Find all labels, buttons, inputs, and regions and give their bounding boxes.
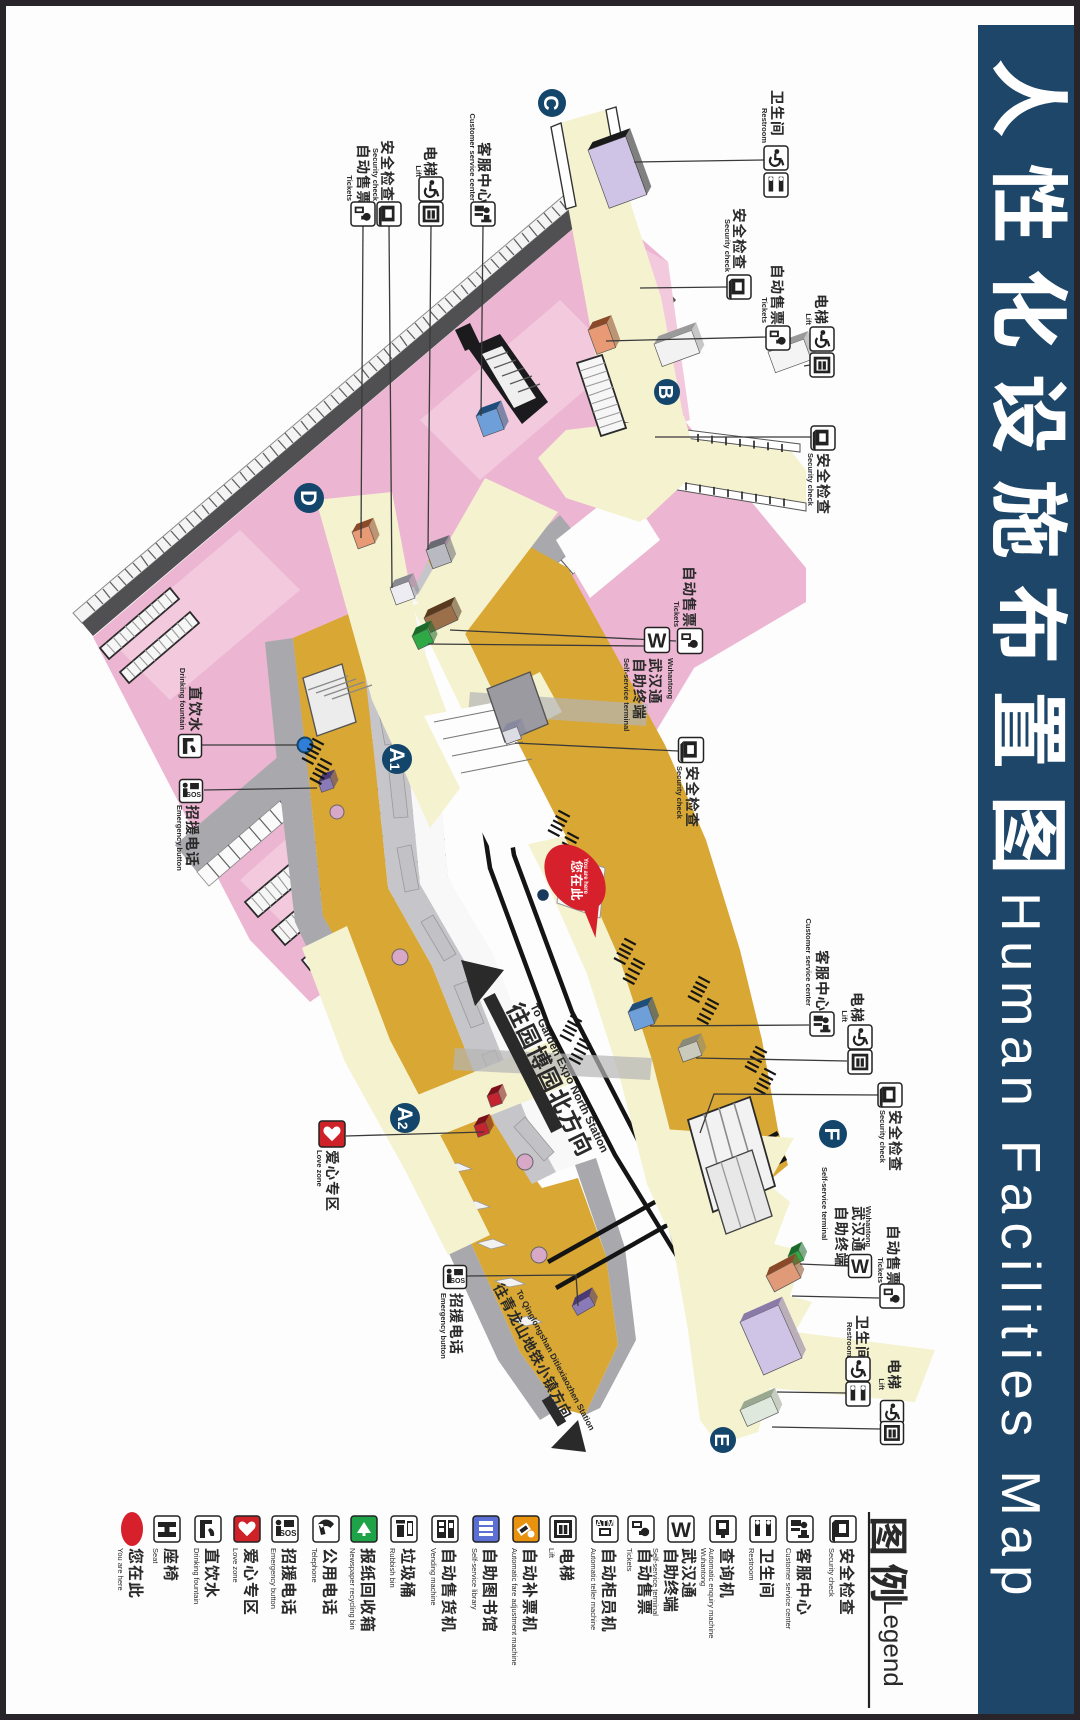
svg-text:Customer service center: Customer service center: [784, 1548, 793, 1630]
svg-text:Restroom: Restroom: [845, 1322, 854, 1357]
svg-text:Newspaper recycling bin: Newspaper recycling bin: [348, 1548, 357, 1630]
svg-text:Security check: Security check: [371, 148, 380, 202]
svg-text:Lift: Lift: [840, 1010, 849, 1022]
svg-text:Customer service center: Customer service center: [804, 918, 813, 1006]
svg-text:Customer service center: Customer service center: [468, 113, 477, 201]
svg-text:Self-service terminal: Self-service terminal: [651, 1548, 660, 1616]
svg-text:SOS: SOS: [186, 792, 201, 799]
svg-text:Vending machine: Vending machine: [429, 1548, 438, 1606]
svg-text:You are here: You are here: [582, 858, 588, 895]
svg-text:Tickets: Tickets: [345, 175, 354, 201]
svg-text:Tickets: Tickets: [625, 1548, 634, 1572]
svg-text:Restroom: Restroom: [747, 1548, 756, 1581]
svg-text:Drinking fountain: Drinking fountain: [192, 1548, 201, 1604]
svg-text:Restroom: Restroom: [760, 108, 769, 143]
svg-text:Self-service library: Self-service library: [470, 1548, 479, 1610]
svg-text:Wuhantong: Wuhantong: [666, 658, 675, 700]
svg-text:Self-service terminal: Self-service terminal: [622, 658, 631, 731]
svg-text:W: W: [648, 631, 667, 653]
svg-text:Tickets: Tickets: [760, 297, 769, 323]
svg-text:Lift: Lift: [547, 1548, 556, 1559]
svg-text:Telephone: Telephone: [310, 1548, 319, 1583]
svg-text:Human Facilities Map: Human Facilities Map: [990, 892, 1052, 1605]
svg-text:Emergency button: Emergency button: [439, 1293, 448, 1359]
svg-text:Wuhantong: Wuhantong: [699, 1548, 708, 1586]
svg-text:Legend: Legend: [878, 1600, 908, 1687]
svg-text:B: B: [654, 385, 676, 399]
svg-text:Security check: Security check: [827, 1548, 836, 1597]
svg-text:Lift: Lift: [877, 1378, 886, 1390]
svg-text:E: E: [710, 1433, 732, 1446]
svg-text:D: D: [296, 490, 321, 506]
svg-text:Love zone: Love zone: [315, 1150, 324, 1187]
svg-text:F: F: [820, 1128, 843, 1141]
svg-text:Automatic teller machine: Automatic teller machine: [589, 1548, 598, 1630]
svg-text:Lift: Lift: [414, 165, 423, 177]
svg-text:Wuhantong: Wuhantong: [864, 1206, 873, 1248]
svg-text:Security check: Security check: [806, 453, 815, 507]
svg-text:Emergency button: Emergency button: [175, 805, 184, 871]
svg-text:SOS: SOS: [280, 1529, 298, 1538]
svg-text:Drinking fountain: Drinking fountain: [178, 668, 187, 730]
svg-text:Security check: Security check: [675, 766, 684, 820]
svg-text:Automatic fare adjustment mach: Automatic fare adjustment machine: [510, 1548, 519, 1666]
svg-text:Security check: Security check: [723, 219, 732, 273]
svg-text:W: W: [671, 1519, 691, 1542]
svg-text:Love zone: Love zone: [231, 1548, 240, 1583]
svg-text:Self-service terminal: Self-service terminal: [820, 1167, 829, 1240]
svg-text:SOS: SOS: [450, 1278, 465, 1285]
svg-text:You are here: You are here: [116, 1548, 125, 1591]
svg-text:Security check: Security check: [878, 1110, 887, 1164]
svg-text:ATM: ATM: [596, 1518, 615, 1528]
svg-text:W: W: [851, 1257, 869, 1278]
svg-text:Seat: Seat: [151, 1548, 160, 1564]
svg-text:Emergency button: Emergency button: [269, 1548, 278, 1609]
svg-text:Rubbish bin: Rubbish bin: [388, 1548, 397, 1588]
svg-text:Lift: Lift: [804, 313, 813, 325]
svg-text:Tickets: Tickets: [876, 1257, 885, 1283]
svg-text:C: C: [539, 95, 562, 110]
svg-text:Tickets: Tickets: [672, 601, 681, 627]
